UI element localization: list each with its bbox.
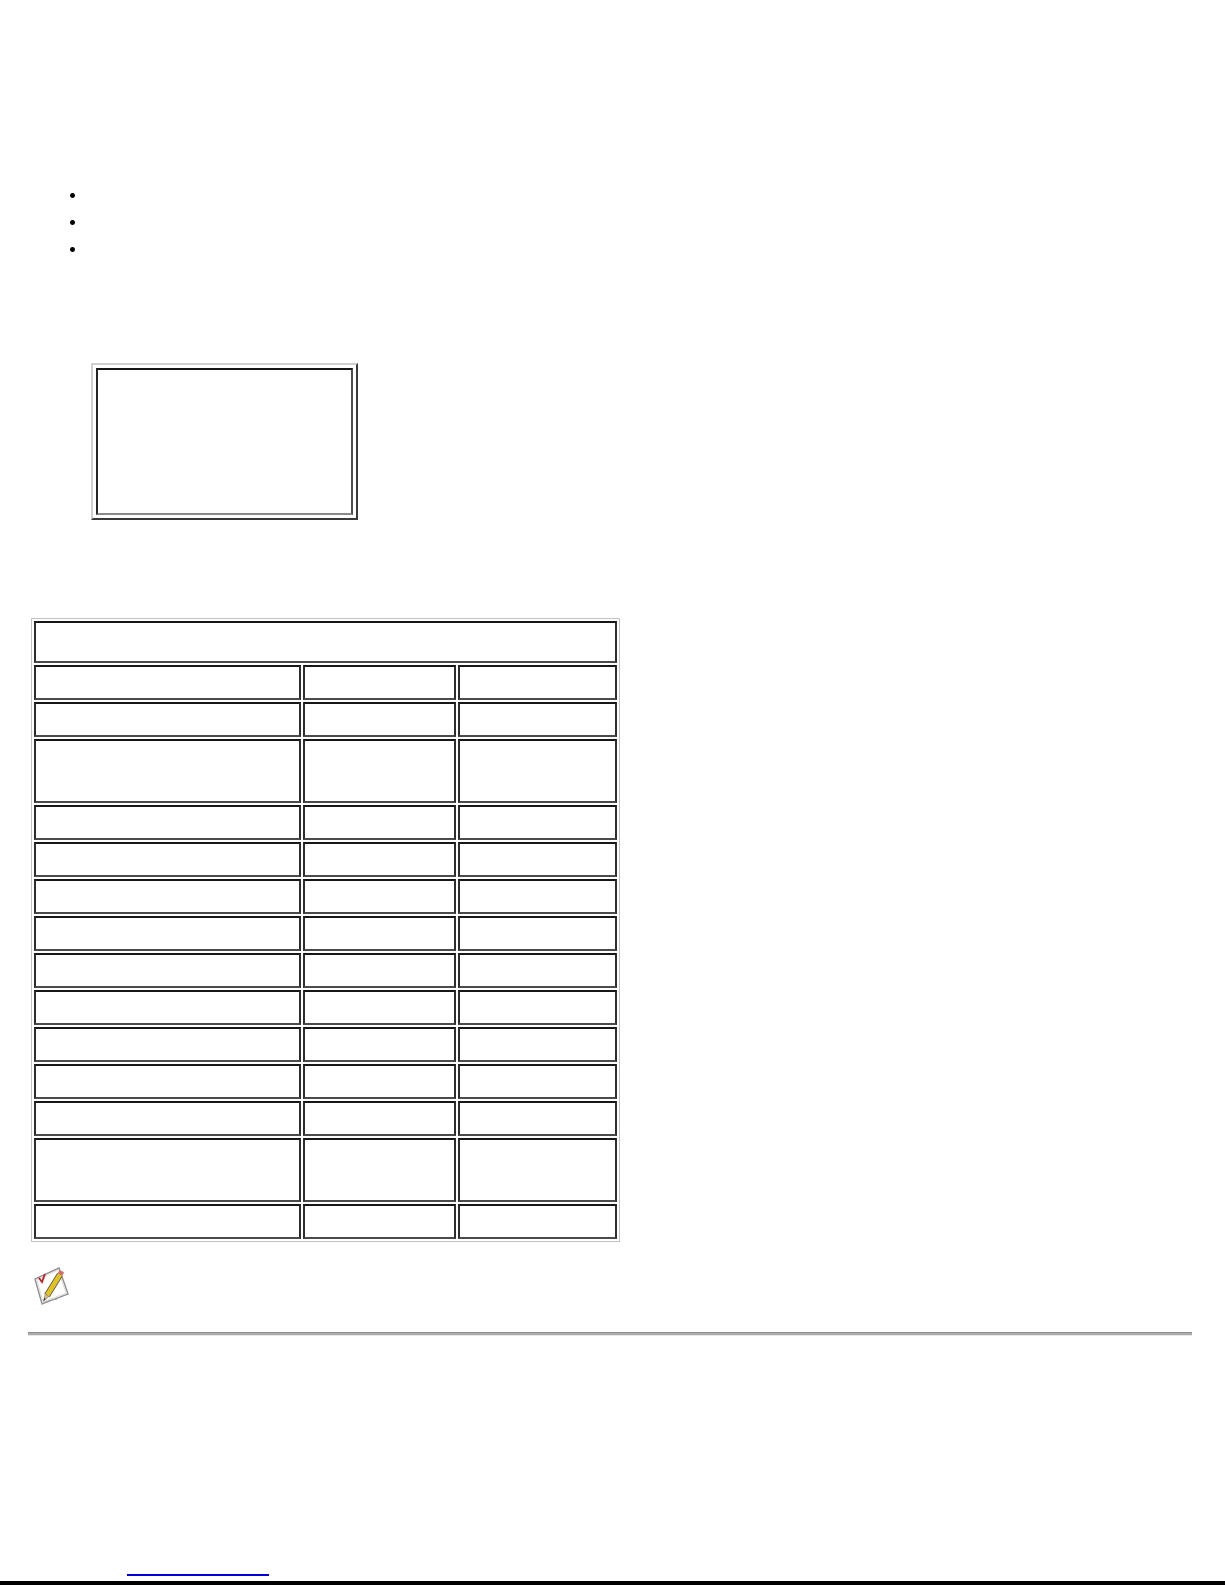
table-cell <box>458 879 617 914</box>
table-row <box>34 842 617 877</box>
table-cell <box>303 842 456 877</box>
spec-table <box>31 618 620 1242</box>
table-cell <box>34 842 301 877</box>
table-row <box>34 879 617 914</box>
table-cell <box>34 879 301 914</box>
table-cell <box>34 953 301 988</box>
table-row <box>34 953 617 988</box>
table-cell <box>458 916 617 951</box>
table-row <box>34 916 617 951</box>
table-row <box>34 805 617 840</box>
table-header-cell <box>34 621 617 663</box>
note-text <box>78 1272 978 1292</box>
table-header-row <box>34 621 617 663</box>
table-cell <box>303 1138 456 1202</box>
table-cell <box>34 1204 301 1239</box>
table-row <box>34 1027 617 1062</box>
note-pencil-icon <box>33 1266 71 1306</box>
table-cell <box>303 990 456 1025</box>
table-cell <box>303 879 456 914</box>
table-cell <box>34 1101 301 1136</box>
table-cell <box>303 702 456 737</box>
table-cell <box>458 1064 617 1099</box>
table-cell <box>303 739 456 803</box>
table-cell <box>303 1027 456 1062</box>
spec-table-body <box>34 621 617 1239</box>
table-cell <box>34 1064 301 1099</box>
table-cell <box>458 1027 617 1062</box>
table-cell <box>34 805 301 840</box>
table-row <box>34 1064 617 1099</box>
table-row <box>34 1204 617 1239</box>
table-cell <box>458 1138 617 1202</box>
image-placeholder-inner <box>96 368 353 515</box>
table-row <box>34 665 617 700</box>
table-row <box>34 990 617 1025</box>
table-row <box>34 702 617 737</box>
table-cell <box>303 1204 456 1239</box>
table-cell <box>458 1101 617 1136</box>
bullet-list <box>70 182 470 263</box>
document-page <box>0 0 1225 1585</box>
table-cell <box>458 953 617 988</box>
image-placeholder <box>91 363 358 520</box>
table-row <box>34 1101 617 1136</box>
table-cell <box>303 1101 456 1136</box>
bottom-bar <box>0 1581 1225 1585</box>
list-item <box>70 236 470 263</box>
list-item <box>70 182 470 209</box>
table-cell <box>303 1064 456 1099</box>
footer-link[interactable] <box>127 1561 269 1576</box>
table-cell <box>34 916 301 951</box>
table-cell <box>458 842 617 877</box>
table-cell <box>303 916 456 951</box>
table-cell <box>458 805 617 840</box>
table-cell <box>458 739 617 803</box>
table-row <box>34 739 617 803</box>
table-cell <box>34 1138 301 1202</box>
table-cell <box>458 990 617 1025</box>
table-cell <box>458 1204 617 1239</box>
table-row <box>34 1138 617 1202</box>
table-cell <box>34 665 301 700</box>
table-cell <box>303 805 456 840</box>
table-cell <box>303 665 456 700</box>
table-cell <box>458 702 617 737</box>
table-cell <box>34 702 301 737</box>
section-divider <box>28 1332 1192 1336</box>
table-cell <box>34 1027 301 1062</box>
table-cell <box>34 739 301 803</box>
table-cell <box>34 990 301 1025</box>
list-item <box>70 209 470 236</box>
table-cell <box>458 665 617 700</box>
table-cell <box>303 953 456 988</box>
